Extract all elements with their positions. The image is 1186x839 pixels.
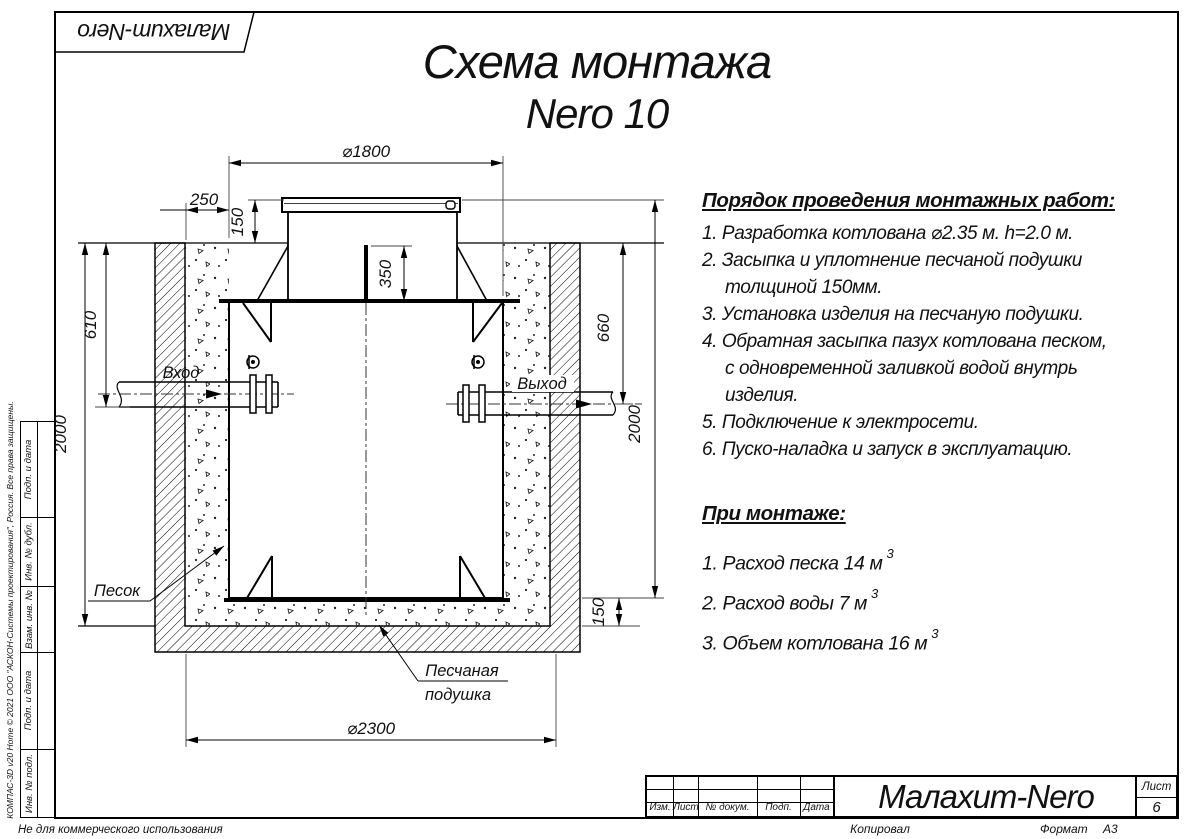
title-block-gridline: [647, 789, 835, 790]
tb-col-list: Лист: [673, 801, 698, 816]
dim-outlet-depth: 660: [594, 313, 613, 342]
instruction-line: изделия.: [702, 382, 1180, 409]
logo-top-left: Малахит-Nero: [58, 13, 250, 50]
montage-block: При монтаже: 1. Расход песка 14 м3 2. Ра…: [702, 502, 1102, 658]
dim-lid-height: 150: [228, 207, 247, 236]
top-brace-right: [457, 246, 487, 301]
outlet-label: Выход: [517, 375, 567, 393]
page-subtitle: Nero 10: [347, 90, 847, 138]
instruction-line: с одновременной заливкой водой внутрь: [702, 355, 1180, 382]
instruction-line: толщиной 150мм.: [702, 274, 1180, 301]
montage-heading: При монтаже:: [702, 502, 1102, 538]
lid-slot: [446, 201, 455, 209]
tb-col-podp: Подп.: [757, 801, 800, 816]
stamp-label: Инв. № подл.: [24, 754, 35, 813]
kompas-copyright: КОМПАС-3D v20 Home © 2021 ООО "АСКОН-Сис…: [5, 395, 15, 825]
montage-item: 2. Расход воды 7 м3: [702, 578, 1102, 618]
sand-label: Песок: [94, 582, 141, 600]
stamp-side: Подп. и дата Инв. № дубл. Взам. инв. № П…: [20, 421, 55, 818]
dim-pit-diameter: ⌀2300: [347, 719, 396, 738]
instruction-line: 4. Обратная засыпка пазух котлована песк…: [702, 328, 1180, 355]
dim-rod-height: 350: [376, 259, 395, 288]
tb-col-izm: Изм.: [647, 801, 673, 816]
montage-item-sup: 3: [886, 546, 893, 561]
dim-top-diameter: ⌀1800: [342, 142, 391, 161]
tank-lid: [282, 198, 460, 212]
montage-item-sup: 3: [931, 626, 938, 641]
top-brace-left: [257, 246, 288, 301]
montage-item: 1. Расход песка 14 м3: [702, 538, 1102, 578]
tb-product-name: Малахит-Nero: [835, 777, 1137, 816]
montage-item-text: 3. Объем котлована 16 м: [702, 633, 927, 655]
instructions-block: Порядок проведения монтажных работ: 1. Р…: [702, 189, 1180, 463]
tank: [219, 198, 520, 600]
stamp-label: Подп. и дата: [24, 440, 35, 499]
instruction-line: 3. Установка изделия на песчаную подушки…: [702, 301, 1180, 328]
format-label: Формат: [1040, 822, 1088, 836]
tb-col-data: Дата: [800, 801, 833, 816]
instruction-line: 1. Разработка котлована ⌀2.35 м. h=2.0 м…: [702, 220, 1180, 247]
stamp-cell: Подп. и дата: [21, 652, 37, 749]
instruction-line: 5. Подключение к электросети.: [702, 409, 1180, 436]
inlet-label: Вход: [163, 364, 200, 382]
montage-item: 3. Объем котлована 16 м3: [702, 618, 1102, 658]
dim-inlet-depth: 610: [81, 310, 100, 339]
dim-offset-left: 250: [189, 190, 219, 209]
page-title: Схема монтажа: [347, 34, 847, 89]
format-value: А3: [1103, 822, 1118, 836]
stamp-label: Взам. инв. №: [24, 590, 35, 649]
tb-col-ndokum: № докум.: [698, 801, 757, 816]
stamp-cell: Подп. и дата: [21, 422, 37, 517]
drawing-sheet: ⌀1800 250 150 350 610 2000 660 2000 150 …: [0, 0, 1186, 839]
stamp-cell: Инв. № подл.: [21, 749, 37, 817]
cushion-label-line1: Песчаная: [425, 662, 499, 680]
tb-sheet-label: Лист: [1137, 777, 1176, 798]
non-commercial-note: Не для коммерческого использования: [18, 824, 223, 836]
instruction-line: 6. Пуско-наладка и запуск в эксплуатацию…: [702, 436, 1180, 463]
cushion-label-line2: подушка: [425, 686, 491, 704]
stamp-gridline: [37, 422, 38, 817]
stamp-cell: Инв. № дубл.: [21, 517, 37, 586]
title-block: Изм. Лист № докум. Подп. Дата Малахит-Ne…: [645, 775, 1178, 818]
stamp-label: Подп. и дата: [24, 671, 35, 730]
montage-item-text: 2. Расход воды 7 м: [702, 593, 867, 615]
stamp-label: Инв. № дубл.: [24, 522, 35, 580]
copied-label: Копировал: [830, 822, 930, 836]
tb-sheet-cell: Лист 6: [1137, 777, 1176, 816]
dim-cushion-thickness: 150: [589, 597, 608, 626]
dim-pit-depth-right: 2000: [625, 405, 644, 444]
montage-item-sup: 3: [871, 586, 878, 601]
instructions-heading: Порядок проведения монтажных работ:: [702, 189, 1180, 220]
instruction-line: 2. Засыпка и уплотнение песчаной подушки: [702, 247, 1180, 274]
tb-sheet-number: 6: [1137, 798, 1176, 816]
montage-item-text: 1. Расход песка 14 м: [702, 553, 882, 575]
stamp-cell: Взам. инв. №: [21, 586, 37, 652]
